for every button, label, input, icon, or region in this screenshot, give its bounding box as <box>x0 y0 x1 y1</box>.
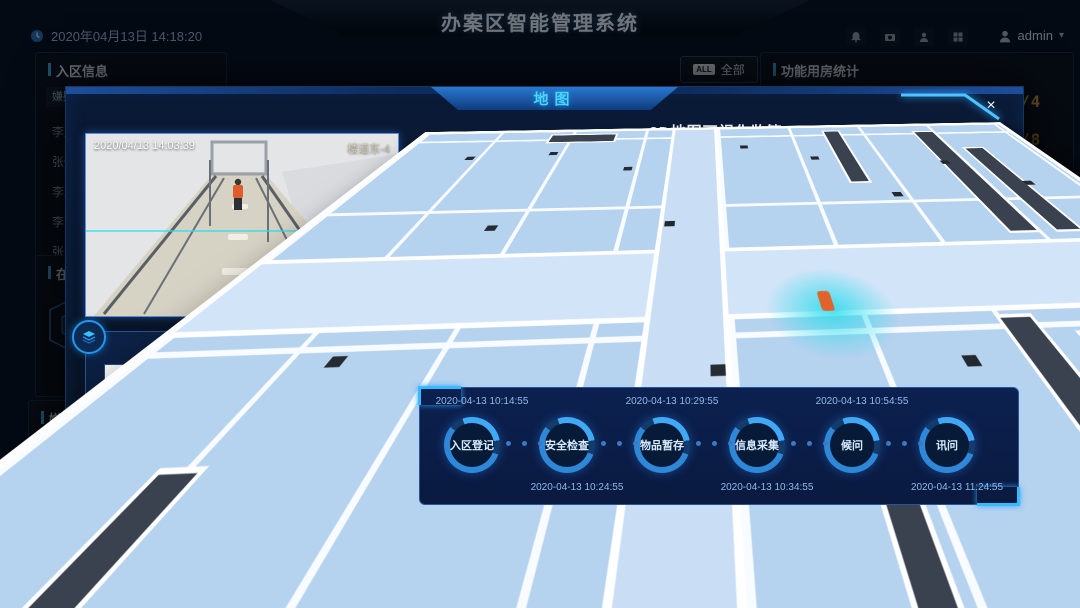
filter-all-label: 全部 <box>721 61 745 78</box>
video-timestamp: 2020/04/13 14:03:39 <box>94 140 195 152</box>
corner-glow-tr <box>895 89 1015 123</box>
admin-label: admin <box>1018 28 1053 43</box>
modal-title: 地图 <box>431 87 678 110</box>
building-grid-icon[interactable] <box>948 28 968 46</box>
timeline-time: 2020-04-13 10:54:55 <box>787 396 937 407</box>
all-badge: ALL <box>693 64 715 75</box>
timeline-connector <box>601 441 638 446</box>
wall-block <box>545 133 618 143</box>
timeline-node-waiting[interactable]: 候问 <box>824 417 880 473</box>
corridor <box>168 236 1080 338</box>
chevron-down-icon: ▾ <box>1059 30 1064 41</box>
timeline-time: 2020-04-13 10:24:55 <box>502 482 652 493</box>
timeline-label: 物品暂存 <box>634 417 690 473</box>
timeline-connector <box>696 441 733 446</box>
timeline-connector <box>886 441 923 446</box>
timeline-time: 2020-04-13 10:29:55 <box>597 396 747 407</box>
user-avatar-icon <box>998 29 1012 43</box>
timeline-node-info[interactable]: 信息采集 <box>729 417 785 473</box>
timeline-time: 2020-04-13 10:14:55 <box>407 396 557 407</box>
timeline-node-security[interactable]: 安全检查 <box>539 417 595 473</box>
entry-info-title: 入区信息 <box>48 61 108 80</box>
process-timeline-panel: 2020-04-13 10:14:55 2020-04-13 10:24:55 … <box>419 387 1019 505</box>
camera-icon[interactable] <box>880 28 900 46</box>
timeline-node-interrogation[interactable]: 讯问 <box>919 417 975 473</box>
room-ratio: /4 <box>1020 92 1072 111</box>
layers-icon[interactable] <box>72 320 106 354</box>
datetime: 2020年04月13日 14:18:20 <box>30 26 202 45</box>
user-alert-icon[interactable] <box>914 28 934 46</box>
datetime-text: 2020年04月13日 14:18:20 <box>51 26 202 45</box>
timeline-time: 2020-04-13 11:24:55 <box>882 482 1032 493</box>
header-icons <box>846 28 968 46</box>
map-3d[interactable] <box>418 139 1018 389</box>
timeline-label: 候问 <box>824 417 880 473</box>
wall-block <box>0 466 209 608</box>
furniture-dots <box>464 157 475 160</box>
camera-name: 楼道东-4 <box>347 140 390 156</box>
wall-block <box>821 130 872 183</box>
timeline-connector <box>506 441 543 446</box>
map-modal: 地图 × <box>65 86 1024 512</box>
bell-icon[interactable] <box>846 28 866 46</box>
function-rooms-title: 功能用房统计 <box>773 61 859 80</box>
timeline-label: 信息采集 <box>729 417 785 473</box>
timeline-node-entry[interactable]: 入区登记 <box>444 417 500 473</box>
timeline-node-storage[interactable]: 物品暂存 <box>634 417 690 473</box>
clock-icon <box>30 29 44 43</box>
timeline-label: 安全检查 <box>539 417 595 473</box>
admin-menu[interactable]: admin ▾ <box>998 28 1064 43</box>
timeline-label: 入区登记 <box>444 417 500 473</box>
filter-all-button[interactable]: ALL 全部 <box>680 56 758 83</box>
timeline-label: 讯问 <box>919 417 975 473</box>
screen: 办案区智能管理系统 2020年04月13日 14:18:20 <box>0 0 1080 608</box>
timeline-time: 2020-04-13 10:34:55 <box>692 482 842 493</box>
timeline-connector <box>791 441 828 446</box>
